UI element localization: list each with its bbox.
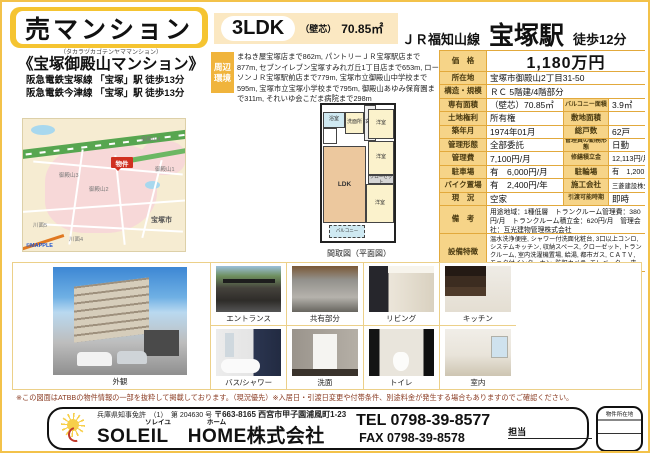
units-value: 62戸 — [609, 126, 645, 138]
station-access: ＪＲ福知山線 宝塚駅 徒歩12分 — [402, 16, 648, 46]
floor-area: 70.85㎡ — [341, 20, 383, 37]
status-label: 現 況 — [440, 193, 486, 205]
room-ldk: LDK — [323, 146, 366, 223]
station-name: 宝塚駅 — [489, 16, 564, 52]
bicycle-value: 有 1,200円/年 — [609, 166, 645, 178]
living-photo — [369, 266, 434, 312]
map-label: 川面5 — [33, 221, 47, 229]
built-value: 1974年01月 — [487, 126, 563, 138]
disclaimer-text: ※この図面はATBBの物件情報の一部を抜粋して掲載しております。（現況優先）※入… — [16, 393, 641, 403]
room-bath: 浴室 — [323, 112, 345, 128]
photo-caption: トイレ — [369, 376, 434, 388]
contact-info: TEL 0798-39-8577 FAX 0798-39-8578 — [356, 411, 490, 445]
photo-cell: 共有部分 — [287, 263, 363, 326]
photo-cell: リビング — [364, 263, 440, 326]
repair-fund-label: 修繕積立金 — [564, 152, 608, 164]
building-name-block: （タカラヅカゴテンヤママンション） 《宝塚御殿山マンション》 阪急電鉄宝塚線 「… — [12, 50, 210, 101]
room-closet: クローゼット — [368, 175, 394, 184]
stamp-box-row — [598, 434, 641, 447]
mgmt-type-value: 全部委託 — [487, 139, 563, 151]
room-washroom: 洗面所 — [345, 112, 364, 134]
car-shape — [117, 351, 146, 364]
area-label: 専有面積 — [440, 99, 486, 111]
room-western-1: 洋室 — [368, 109, 394, 139]
photo-cell: エントランス — [211, 263, 287, 326]
bathtub-shape — [221, 359, 260, 373]
photo-caption: 洗面 — [292, 376, 357, 388]
photo-caption: リビング — [369, 312, 434, 324]
map-water-2 — [145, 181, 160, 189]
car-shape — [77, 352, 112, 366]
room-toilet — [323, 128, 337, 144]
bath-photo — [216, 329, 281, 376]
common-area-photo — [292, 266, 357, 312]
toilet-photo — [369, 329, 434, 376]
structure-value: ＲＣ 5階建/4階部分 — [487, 85, 645, 97]
bicycle-label: 駐輪場 — [564, 166, 608, 178]
details-table: 価 格 1,180万円 所在地 宝塚市御殿山2丁目31-50 構造・規模 ＲＣ … — [439, 50, 645, 272]
fax-number: FAX 0798-39-8578 — [356, 431, 490, 446]
photo-caption: 外観 — [53, 375, 187, 387]
mgmt-fee-value: 7,100円/月 — [487, 152, 563, 164]
sale-type-badge: 売マンション — [10, 7, 208, 48]
fence-shape — [144, 330, 179, 356]
photo-cell: トイレ — [364, 326, 440, 389]
remarks-label: 備 考 — [440, 206, 486, 233]
kitchen-photo — [445, 266, 511, 312]
layout-spec-strip: 3LDK （壁芯） 70.85㎡ — [214, 13, 398, 44]
photo-caption: バス/シャワー — [216, 376, 281, 388]
site-area-label: 敷地面積 — [564, 112, 608, 124]
photo-cell: 洗面 — [287, 326, 363, 389]
floor-shape — [292, 369, 357, 376]
handover-label: 引渡可能時期 — [564, 193, 608, 205]
phone-number: TEL 0798-39-8577 — [356, 411, 490, 430]
mgr-duty-value: 日勤 — [609, 139, 645, 151]
structure-label: 構造・規模 — [440, 85, 486, 97]
builder-value: 三菱建設株式会社 — [609, 179, 645, 191]
status-value: 空家 — [487, 193, 563, 205]
toilet-shape — [393, 352, 409, 372]
ceiling-shape — [388, 266, 434, 273]
washstand-photo — [292, 329, 357, 376]
stamp-box-label: 物件所在地 — [598, 408, 641, 421]
environment-text: まねき屋宝塚店まで862m, パントリーＪＲ宝塚駅店まで877m, セブンイレブ… — [237, 52, 440, 105]
soleil-logo-icon — [59, 412, 89, 446]
photo-caption: キッチン — [445, 312, 511, 324]
map-water — [31, 125, 55, 135]
map-label: 御殿山4 — [141, 135, 161, 143]
staff-name-field: 担当 — [508, 425, 592, 439]
photo-grid: エントランス 共有部分 リビング キッチン バス/シャワー 洗面 — [210, 263, 516, 389]
room-western-3: 洋室 — [366, 184, 394, 223]
land-right-value: 所有権 — [487, 112, 563, 124]
parking-value: 有 6,000円/月 — [487, 166, 563, 178]
map-label: 御殿山1 — [155, 165, 175, 173]
location-label: 所在地 — [440, 72, 486, 84]
mgr-duty-label: 管理員の勤務形態 — [564, 139, 608, 151]
map-label: 川面4 — [69, 235, 83, 243]
access-line-2: 阪急電鉄今津線 「宝塚」駅 徒歩13分 — [26, 87, 210, 100]
map-label: 御殿山3 — [59, 171, 79, 179]
company-name: SOLEIL HOME株式会社 — [97, 427, 346, 447]
price-label: 価 格 — [440, 51, 486, 71]
photo-caption: エントランス — [216, 312, 281, 324]
location-map: 御殿山4 御殿山3 御殿山2 御殿山1 宝塚市 川面5 川面4 物件 ©MAPP… — [22, 118, 186, 252]
photo-exterior-cell: 外観 — [53, 267, 187, 387]
mirror-shape — [225, 333, 234, 357]
window-shape — [491, 336, 508, 359]
handover-value: 即時 — [609, 193, 645, 205]
canopy-shape — [223, 279, 275, 284]
photo-cell: 室内 — [440, 326, 516, 389]
room-western-2: 洋室 — [368, 141, 394, 175]
mgmt-type-label: 管理形態 — [440, 139, 486, 151]
site-area-value — [609, 112, 645, 124]
environment-label: 周辺環境 — [211, 52, 234, 93]
exterior-photo — [53, 267, 187, 375]
area-prefix: （壁芯） — [300, 22, 336, 35]
room-balcony: バルコニー — [329, 225, 365, 238]
property-map-marker: 物件 — [111, 157, 133, 168]
units-label: 総戸数 — [564, 126, 608, 138]
photo-cell: キッチン — [440, 263, 516, 326]
map-label-city: 宝塚市 — [151, 215, 172, 225]
stamp-box-row — [598, 421, 641, 434]
land-right-label: 土地権利 — [440, 112, 486, 124]
floor-plan: 浴室 洗面所 玄関 洋室 洋室 クローゼット 洋室 LDK バルコニー — [320, 103, 396, 243]
company-footer: 兵庫県知事免許 （1） 第 204630 号 〒663-8165 西宮市甲子園浦… — [47, 407, 589, 450]
map-credit: ©MAPPLE — [26, 243, 53, 249]
photo-caption: 室内 — [445, 376, 511, 388]
cabinet-shape — [445, 266, 486, 296]
parking-label: 駐車場 — [440, 166, 486, 178]
company-info: 兵庫県知事免許 （1） 第 204630 号 〒663-8165 西宮市甲子園浦… — [97, 410, 346, 446]
area-value: （壁芯）70.85㎡ — [487, 99, 563, 111]
access-line-1: 阪急電鉄宝塚線 「宝塚」駅 徒歩13分 — [26, 74, 210, 87]
repair-fund-value: 12,113円/月 — [609, 152, 645, 164]
rail-line: ＪＲ福知山線 — [402, 29, 480, 48]
stamp-box: 物件所在地 — [596, 406, 643, 452]
building-name: 《宝塚御殿山マンション》 — [12, 56, 210, 73]
property-flyer: 売マンション 3LDK （壁芯） 70.85㎡ ＪＲ福知山線 宝塚駅 徒歩12分… — [0, 0, 650, 453]
bike-label: バイク置場 — [440, 179, 486, 191]
location-value: 宝塚市御殿山2丁目31-50 — [487, 72, 645, 84]
balcony-label: バルコニー面積 — [564, 99, 608, 111]
entrance-photo — [216, 266, 281, 312]
photo-caption: 共有部分 — [292, 312, 357, 324]
built-label: 築年月 — [440, 126, 486, 138]
environment-section: 周辺環境 まねき屋宝塚店まで862m, パントリーＪＲ宝塚駅店まで877m, セ… — [211, 52, 440, 105]
company-address: 〒663-8165 西宮市甲子園浦風町1-23 — [214, 410, 346, 419]
sale-type-label: 売マンション — [16, 11, 202, 44]
bike-value: 有 2,400円/年 — [487, 179, 563, 191]
map-label: 御殿山2 — [89, 185, 109, 193]
remarks-value: 用途地域：1種低層 トランクルーム管理費：380円/月 トランクルーム積立金：6… — [487, 206, 645, 233]
photo-section: 外観 エントランス 共有部分 リビング キッチン バス/シャワー — [12, 262, 642, 390]
photo-cell: バス/シャワー — [211, 326, 287, 389]
builder-label: 施工会社 — [564, 179, 608, 191]
vanity-shape — [313, 334, 336, 370]
room-photo — [445, 329, 511, 376]
building-shape — [74, 278, 149, 343]
mgmt-fee-label: 管理費 — [440, 152, 486, 164]
walk-time: 徒歩12分 — [573, 29, 626, 48]
price-value: 1,180万円 — [487, 51, 645, 71]
layout-label: 3LDK — [221, 16, 295, 41]
floor-plan-caption: 間取図（平面図） — [307, 248, 411, 259]
balcony-value: 3.9㎡ — [609, 99, 645, 111]
